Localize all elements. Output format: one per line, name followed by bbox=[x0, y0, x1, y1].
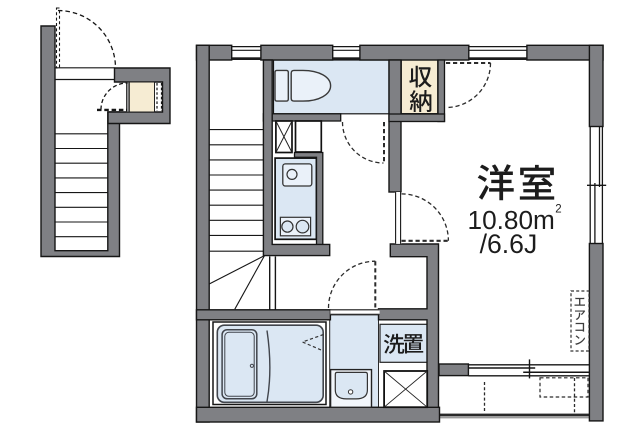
svg-text:2: 2 bbox=[555, 204, 561, 216]
svg-text:/6.6J: /6.6J bbox=[480, 229, 538, 259]
